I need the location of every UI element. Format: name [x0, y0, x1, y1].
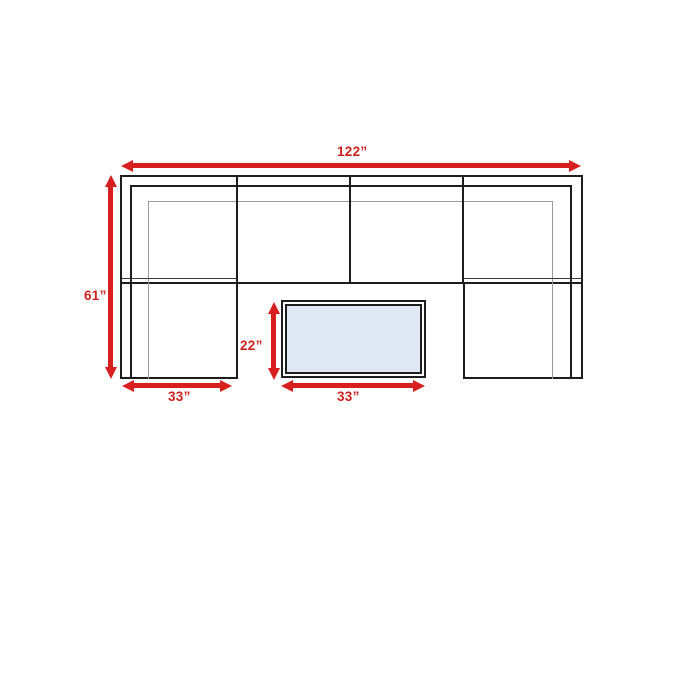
coffee-table: [281, 300, 426, 378]
dimension-arrow-table-depth: [271, 313, 276, 369]
dimension-label-left-section-width: 33”: [168, 389, 191, 404]
dimension-label-table-width: 33”: [337, 389, 360, 404]
left-armrest-seat-line: [148, 201, 149, 379]
dimension-arrow-table-width: [292, 383, 414, 388]
left-chair-front-line: [121, 278, 237, 279]
seat-divider-1: [236, 175, 238, 284]
dimension-label-overall-depth: 61”: [84, 288, 107, 303]
dimension-label-table-depth: 22”: [240, 338, 263, 353]
seat-divider-2: [349, 175, 351, 284]
dimension-arrow-left-section-width: [133, 383, 221, 388]
sofa-top-band-outline: [120, 175, 583, 284]
backrest-inner-line: [130, 185, 572, 187]
dimension-arrow-overall-depth: [108, 186, 113, 368]
right-armrest-seat-line: [552, 201, 553, 379]
left-armrest-inner-line: [130, 185, 132, 379]
dimension-diagram: 122” 61” 33” 22” 33”: [0, 0, 700, 700]
seat-divider-3: [462, 175, 464, 284]
sofa-right-section-outline: [463, 282, 583, 379]
dimension-arrow-overall-width: [132, 163, 570, 168]
coffee-table-top: [285, 304, 422, 374]
right-chair-front-line: [464, 278, 582, 279]
sofa-left-section-outline: [120, 282, 238, 379]
right-armrest-inner-line: [570, 185, 572, 379]
dimension-label-overall-width: 122”: [337, 144, 367, 159]
